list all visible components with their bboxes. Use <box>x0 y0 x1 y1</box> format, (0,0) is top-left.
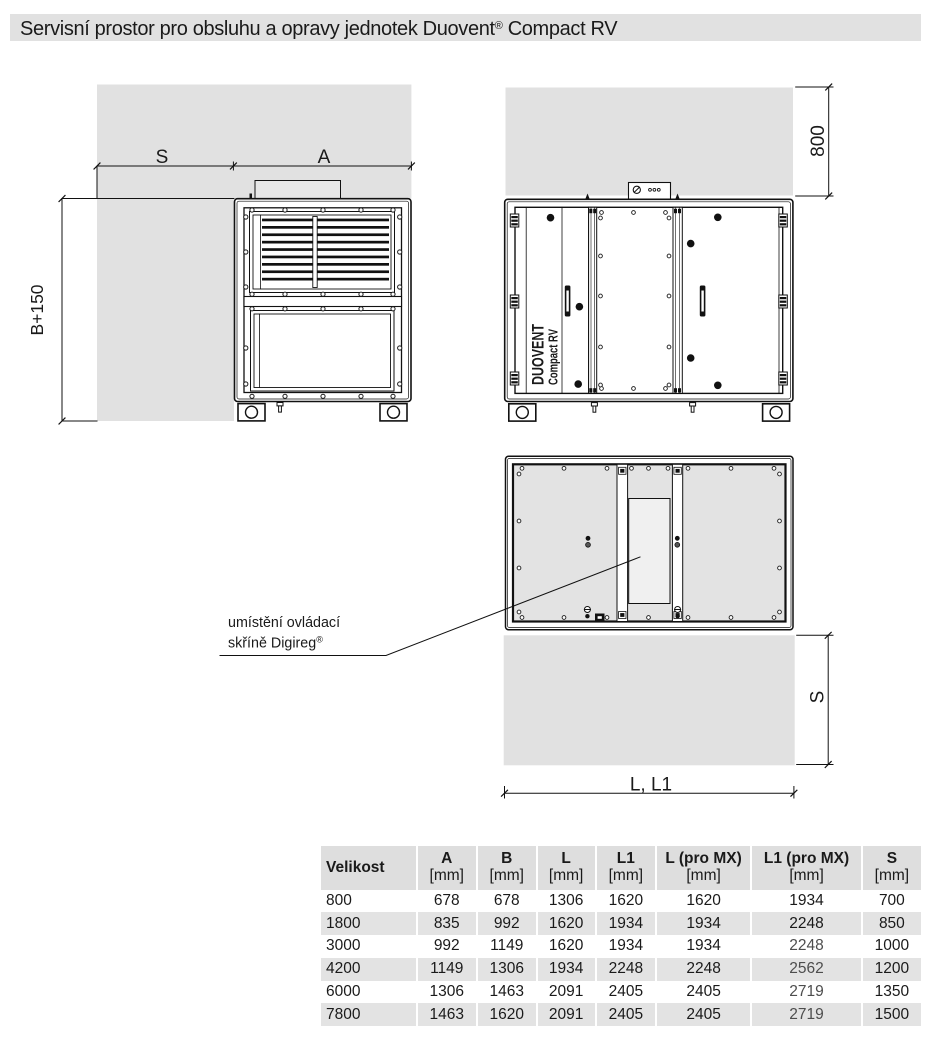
svg-text:Compact RV: Compact RV <box>547 329 561 385</box>
svg-text:B+150: B+150 <box>27 284 47 335</box>
svg-text:A: A <box>318 147 331 168</box>
svg-text:DUOVENT: DUOVENT <box>530 324 548 385</box>
svg-text:umístění ovládací: umístění ovládací <box>228 615 340 631</box>
svg-text:S: S <box>808 691 829 704</box>
svg-text:L, L1: L, L1 <box>630 775 672 796</box>
svg-text:800: 800 <box>808 125 829 157</box>
svg-text:S: S <box>156 147 169 168</box>
svg-text:skříně Digireg®: skříně Digireg® <box>228 635 323 652</box>
